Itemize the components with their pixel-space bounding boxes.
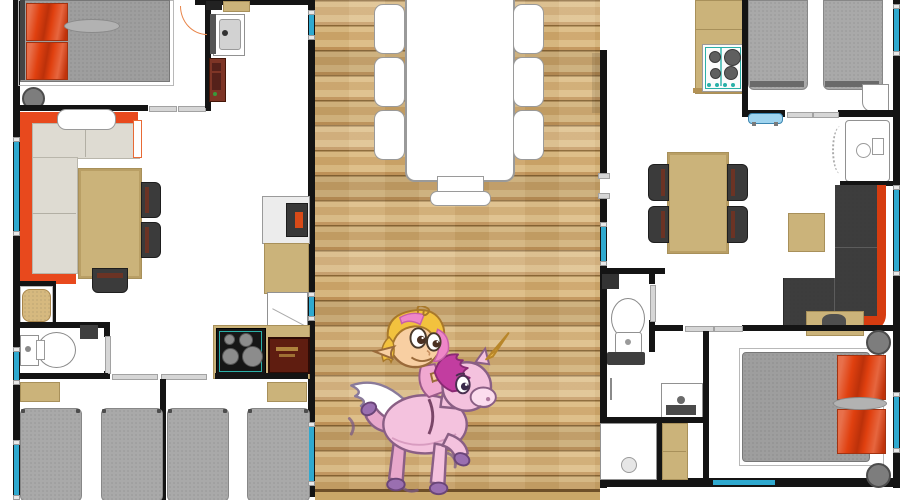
dining-chair	[648, 206, 669, 243]
door-leaf	[178, 106, 206, 112]
wall-cabinet	[80, 325, 98, 339]
shelf	[223, 1, 250, 12]
toilet-hinge	[36, 340, 45, 360]
corner-sofa	[835, 185, 877, 316]
hob-knob	[715, 83, 719, 87]
burner	[724, 49, 741, 66]
shower-door-arc	[832, 126, 849, 174]
radiator	[133, 120, 142, 158]
shelf	[267, 382, 307, 402]
wall-shadow	[592, 53, 600, 113]
hall-wall	[742, 325, 893, 331]
cabinet-panel	[212, 73, 221, 90]
sofa-seam	[835, 247, 877, 248]
counter-seam	[662, 451, 686, 452]
hob-knob	[723, 83, 727, 87]
dining-table	[667, 152, 729, 254]
bathroom-wall	[703, 331, 709, 478]
door-leaf	[685, 326, 714, 332]
window	[713, 480, 775, 485]
unicorn-svg	[333, 306, 519, 500]
deck-chair	[374, 110, 405, 160]
deck-chair	[513, 57, 544, 107]
door-leaf	[161, 374, 207, 380]
dining-chair	[648, 164, 669, 201]
bath-mat	[607, 352, 645, 365]
dining-chair	[727, 206, 748, 243]
shower-drain	[621, 457, 637, 473]
right-unit-west-wall	[600, 50, 607, 175]
sofa-tray	[57, 109, 116, 130]
dining-chair	[727, 164, 748, 201]
door-leaf	[787, 112, 813, 118]
dining-chair	[92, 268, 128, 293]
deck-end-seat-base	[430, 191, 491, 206]
vanity-front	[666, 405, 696, 415]
window	[14, 140, 19, 233]
pillow	[26, 42, 68, 80]
hall-wall	[655, 325, 683, 331]
burner	[242, 346, 263, 367]
burner	[222, 348, 239, 365]
pillow	[26, 3, 68, 41]
vanity-side-panel	[210, 14, 216, 54]
microwave-label	[279, 354, 295, 357]
tap	[677, 396, 685, 404]
single-bed	[748, 0, 808, 90]
counter-seam	[695, 29, 745, 30]
tap	[25, 346, 31, 352]
shower-drain	[856, 143, 871, 158]
window	[309, 295, 314, 318]
burner	[709, 51, 721, 63]
stool	[866, 330, 891, 355]
microwave-label	[276, 347, 298, 351]
hob-knob	[707, 83, 711, 87]
shelf	[20, 382, 60, 402]
towel-rail	[610, 378, 612, 400]
single-bed	[823, 0, 883, 90]
deck-dining-table	[405, 0, 515, 182]
door-mark	[598, 193, 610, 199]
door-leaf	[112, 374, 158, 380]
flush-button	[625, 339, 631, 345]
sofa-cushions	[32, 157, 78, 274]
door-leaf	[149, 106, 177, 112]
fairy-unicorn-character	[333, 306, 519, 500]
window	[309, 13, 314, 37]
window	[601, 225, 606, 263]
dining-chair	[141, 182, 161, 218]
pillow	[837, 355, 886, 400]
footboard	[750, 81, 804, 87]
window	[894, 188, 899, 273]
indicator-dot	[213, 92, 217, 96]
deck-chair	[374, 57, 405, 107]
shower-control	[872, 138, 884, 155]
hall-wall	[20, 373, 108, 379]
wc-wall	[649, 274, 655, 284]
single-bed	[101, 408, 163, 500]
window	[14, 443, 19, 497]
tap	[222, 30, 228, 36]
tv-detail	[295, 212, 303, 228]
single-bed	[247, 408, 310, 500]
single-bed	[167, 408, 229, 500]
cistern-box	[602, 274, 619, 289]
window	[14, 350, 19, 382]
pouf	[788, 213, 825, 252]
shelf-leg	[774, 122, 778, 126]
cabinet	[206, 1, 222, 10]
hall-wall	[215, 373, 308, 379]
door-swing-arc	[180, 6, 207, 35]
pillow	[837, 409, 886, 454]
sofa-back-left	[20, 112, 32, 280]
stool	[866, 463, 891, 488]
burner	[724, 66, 738, 80]
bed-runner-ornament	[64, 19, 120, 33]
burner	[710, 68, 721, 79]
headboard	[20, 0, 25, 80]
dining-table	[78, 168, 142, 279]
cabinet-panel	[212, 63, 221, 71]
window	[894, 7, 899, 53]
door-leaf	[714, 326, 743, 332]
floor-plan	[0, 0, 900, 500]
burner	[239, 333, 253, 347]
bed-runner-ornament	[833, 397, 887, 410]
door-leaf	[105, 336, 111, 374]
window	[894, 395, 899, 450]
bedside-cabinet	[862, 84, 889, 112]
hob-knob	[731, 83, 735, 87]
door-mark	[598, 173, 610, 179]
deck-chair	[513, 110, 544, 160]
burner	[224, 334, 235, 345]
kitchen-counter	[264, 243, 309, 294]
door-leaf	[813, 112, 839, 118]
shower-tray	[22, 289, 51, 322]
deck-chair	[374, 4, 405, 54]
dining-chair	[141, 222, 161, 258]
shelf-leg	[752, 122, 756, 126]
single-bed	[20, 408, 82, 500]
window	[309, 425, 314, 483]
cushion-seam	[32, 213, 76, 214]
bedroom-wall	[838, 110, 893, 117]
door-leaf	[650, 285, 656, 322]
deck-chair	[513, 4, 544, 54]
